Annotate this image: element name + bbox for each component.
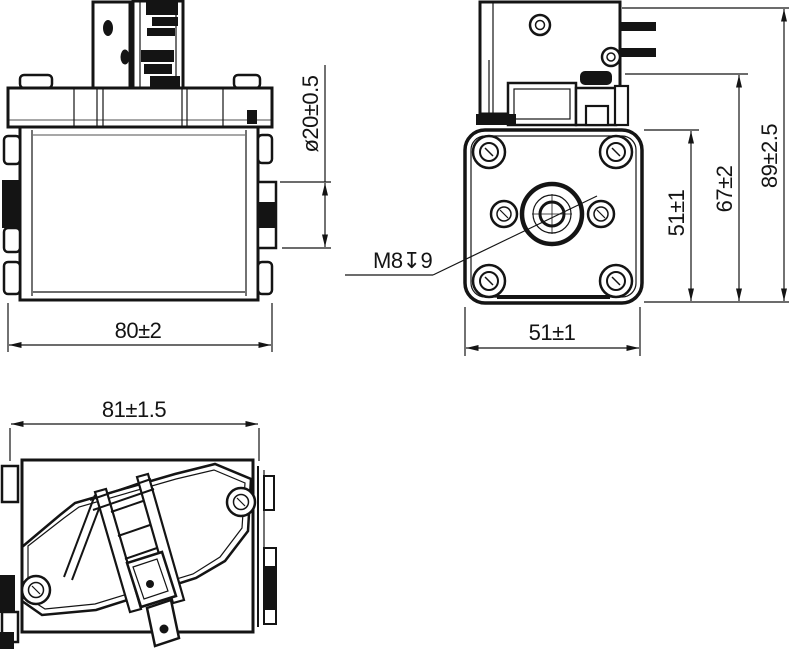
dim-label-overall-height: 89±2.5	[757, 124, 782, 188]
top-view: 81±1.5	[0, 397, 276, 649]
dim-mount-width: 51±1	[465, 307, 640, 356]
front-view: M8↧9 89±2.5 67±2 51±1 51±1	[345, 2, 789, 356]
side-screw-icon	[491, 201, 517, 227]
dim-label-mount-height: 51±1	[664, 189, 689, 236]
dim-label-body-width: 80±2	[115, 318, 162, 343]
corner-screw-icon	[473, 136, 505, 168]
side-screw-icon	[588, 201, 614, 227]
dim-label-mount-width: 51±1	[529, 320, 576, 345]
technical-drawing-canvas: ø20±0.5 80±2	[0, 0, 790, 649]
dim-overall-width: 81±1.5	[10, 397, 259, 461]
right-side-tabs	[258, 135, 276, 294]
top-screw-icon	[227, 488, 255, 516]
fuse-body	[20, 127, 258, 300]
left-side-tabs	[2, 136, 20, 294]
dim-boss-diameter: ø20±0.5	[280, 65, 331, 248]
switch-button	[580, 71, 612, 85]
corner-screw-icon	[600, 136, 632, 168]
bracket-screw-icon	[602, 48, 620, 66]
terminal-pin	[620, 22, 656, 31]
fuse-technical-drawing: ø20±0.5 80±2	[0, 0, 790, 649]
corner-screw-icon	[600, 265, 632, 297]
microswitch-bracket	[476, 2, 656, 125]
dim-label-boss-diameter: ø20±0.5	[298, 75, 323, 152]
terminal-pin	[620, 48, 656, 57]
dim-label-housing-height: 67±2	[712, 165, 737, 212]
top-screw-icon	[22, 576, 50, 604]
bracket-screw-icon	[530, 15, 550, 35]
dim-label-overall-width: 81±1.5	[102, 397, 166, 422]
dim-body-width: 80±2	[8, 303, 272, 352]
side-view: ø20±0.5 80±2	[2, 1, 331, 352]
corner-screw-icon	[473, 265, 505, 297]
dim-label-thread-depth: M8↧9	[373, 248, 432, 273]
